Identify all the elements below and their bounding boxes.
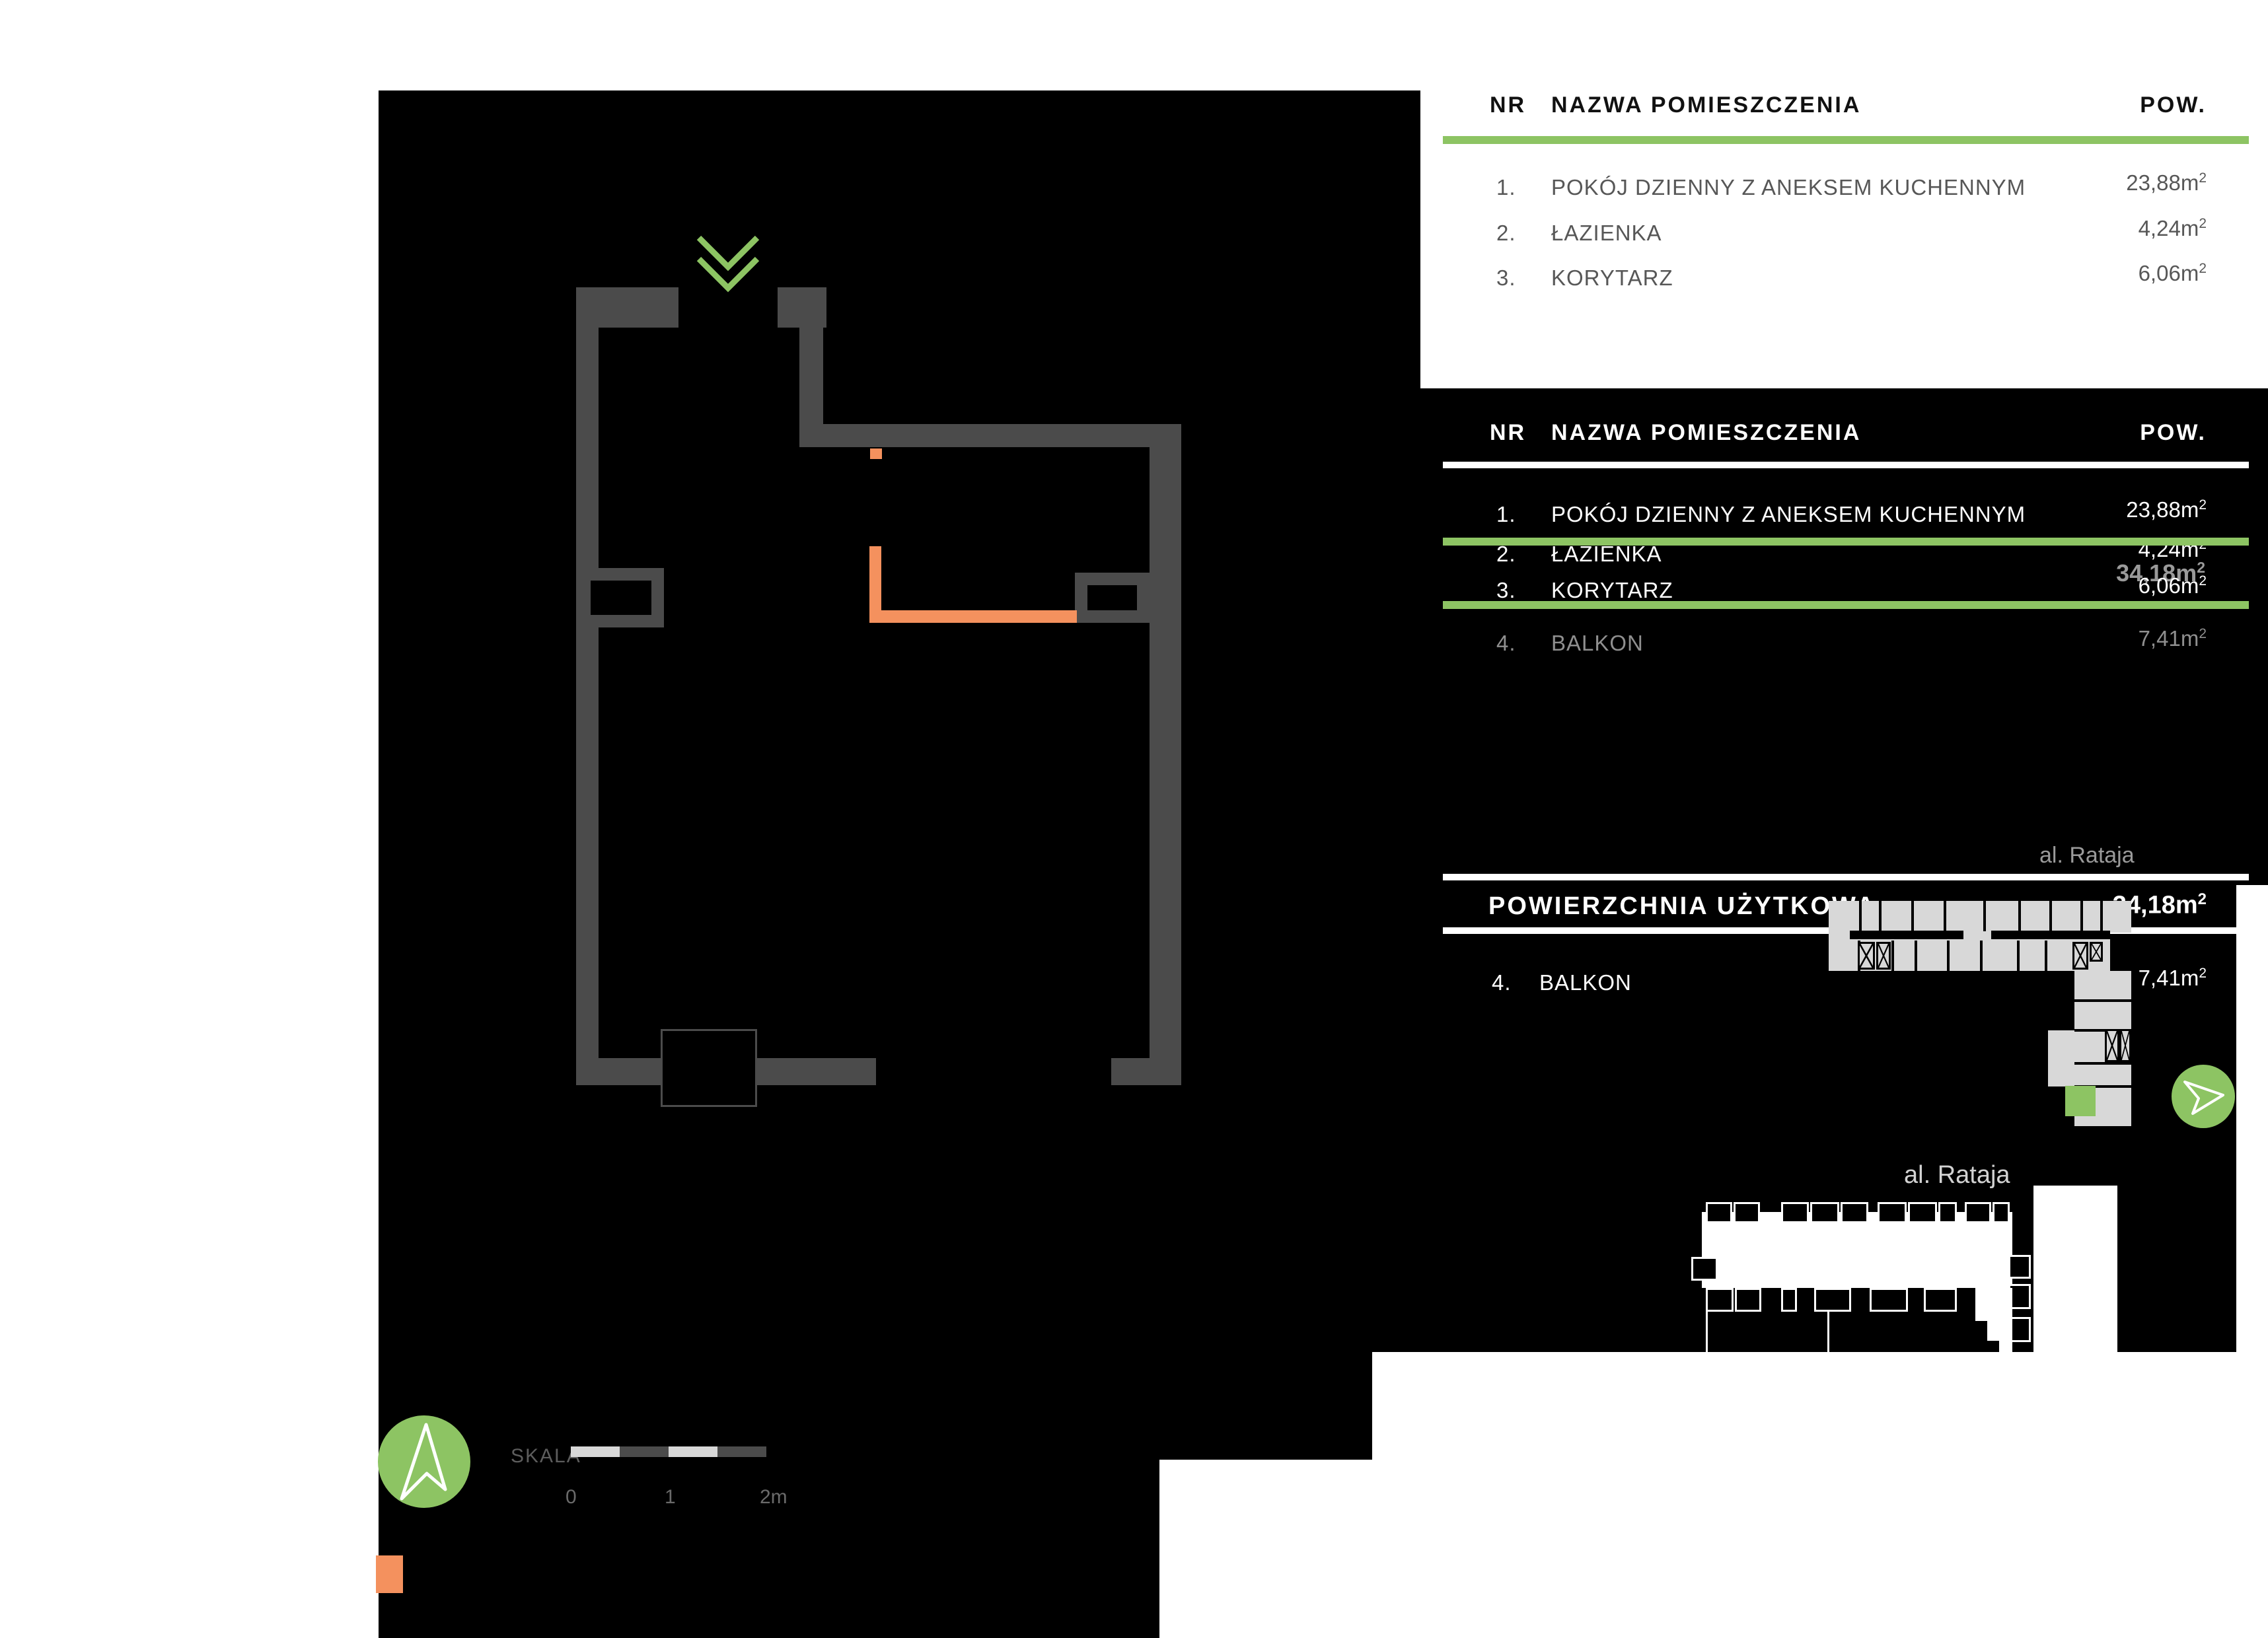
scale-segment — [620, 1446, 669, 1457]
building-wing-tab — [2048, 1030, 2074, 1086]
entrance-box — [1691, 1257, 1718, 1281]
entrance-chevron-icon — [694, 232, 762, 293]
street-label: al. Rataja — [1904, 1161, 2010, 1190]
corridor-line-left — [1850, 931, 1963, 939]
highlight-wall-stub — [870, 448, 882, 459]
stairs-icon — [2072, 942, 2088, 970]
stairs-icon — [2119, 1029, 2131, 1062]
stairs-icon — [2105, 1029, 2119, 1062]
stairs-icon — [1876, 942, 1891, 970]
wall-top-mid — [778, 287, 826, 328]
scale-segment — [717, 1446, 766, 1457]
building-bar-top — [1829, 901, 2131, 933]
wall-corridor-horizontal — [799, 424, 1181, 447]
building-bar — [1702, 1212, 2012, 1288]
scale-tick-0: 0 — [566, 1486, 577, 1509]
direction-arrow-icon[interactable] — [2172, 1065, 2235, 1128]
wall-left — [576, 287, 599, 1085]
highlight-wall-horizontal — [869, 610, 1077, 623]
legend-orange-swatch — [376, 1555, 403, 1593]
wall-right — [1150, 424, 1181, 1085]
scale-tick-1: 1 — [665, 1486, 676, 1509]
balcony-door — [661, 1029, 757, 1107]
floor-plan — [0, 0, 2268, 1638]
stairs-icon — [2090, 942, 2103, 962]
floor-plan-page: NR NAZWA POMIESZCZENIA POW. 1. POKÓJ DZI… — [0, 0, 2268, 1638]
current-apartment-marker — [2065, 1086, 2096, 1116]
scale-tick-2m: 2m — [760, 1486, 787, 1509]
north-arrow-icon — [378, 1415, 470, 1508]
corridor-line-right — [1991, 931, 2110, 939]
stairs-icon — [1858, 942, 1875, 970]
scale-segment — [571, 1446, 620, 1457]
shaft-left — [578, 568, 664, 627]
shaft-right — [1075, 573, 1150, 623]
site-map-estate: al. Rataja — [1685, 1159, 2094, 1352]
wall-bottom-right — [1111, 1058, 1181, 1085]
scale-segment — [669, 1446, 717, 1457]
